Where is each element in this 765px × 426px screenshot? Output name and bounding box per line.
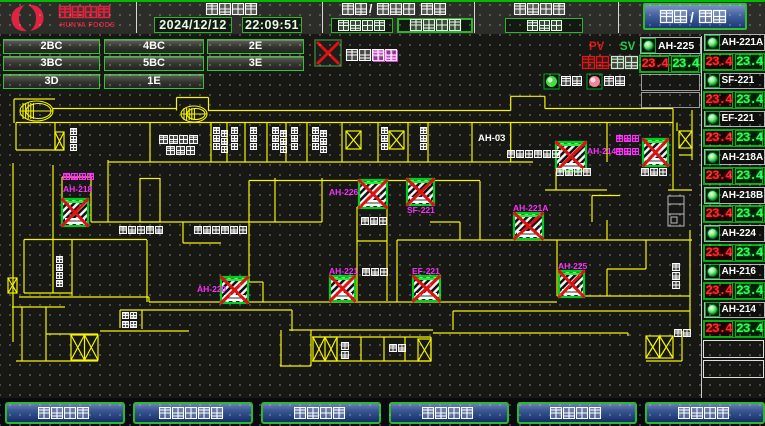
svg-text:SV: SV [620,41,636,53]
svg-text:AH-220: AH-220 [197,284,227,294]
svg-text:AH-214: AH-214 [587,146,617,156]
svg-text:AH-221A: AH-221A [513,203,548,213]
svg-text:AH-218: AH-218 [63,184,93,194]
svg-text:AH-03: AH-03 [478,133,505,144]
svg-text:SF-221: SF-221 [407,205,435,215]
svg-text:/: / [690,9,694,25]
svg-text:PV: PV [589,41,605,53]
svg-text:AH-225: AH-225 [558,261,588,271]
svg-text:AH-221: AH-221 [329,266,359,276]
svg-text:AH-226: AH-226 [329,187,359,197]
svg-text:HUNYA FOODS: HUNYA FOODS [60,22,115,29]
svg-text:EF-221: EF-221 [412,266,440,276]
